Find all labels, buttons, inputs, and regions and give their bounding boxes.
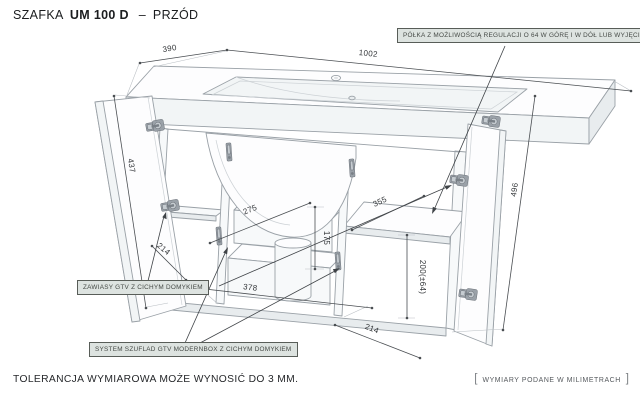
- dimension-label: 200(±64): [418, 260, 427, 294]
- drawer-slide-icon: [226, 143, 232, 161]
- drawer-slide-icon: [335, 252, 341, 270]
- dimension-label: 390: [162, 43, 178, 54]
- drawer-slide-icon: [349, 159, 355, 177]
- siphon-cylinder: [275, 243, 311, 301]
- page: { "title": { "prefix": "SZAFKA", "model"…: [0, 0, 640, 400]
- dimension-label: 496: [509, 182, 520, 198]
- dimension-shelf-clearance: 200(±64): [406, 234, 427, 320]
- dimension-label: 378: [243, 282, 258, 293]
- dimension-label: 1002: [358, 48, 378, 59]
- faucet-hole-inner: [334, 77, 338, 79]
- siphon-cylinder-top: [275, 238, 311, 248]
- cabinet-technical-drawing: 390 1002 437 496 214 275 175 378 355: [0, 0, 640, 400]
- callout-adjustable-shelf: PÓŁKA Z MOŻLIWOŚCIĄ REGULACJI O 64 W GÓR…: [397, 28, 640, 43]
- callout-drawer-system: SYSTEM SZUFLAD GTV MODERNBOX Z CICHYM DO…: [89, 342, 298, 357]
- washbasin-countertop: [126, 66, 615, 144]
- drawer-slide-icon: [216, 227, 222, 245]
- callout-hinges: ZAWIASY GTV Z CICHYM DOMYKIEM: [77, 280, 209, 295]
- overflow-hole: [349, 96, 355, 100]
- hinge-icon: [449, 173, 468, 186]
